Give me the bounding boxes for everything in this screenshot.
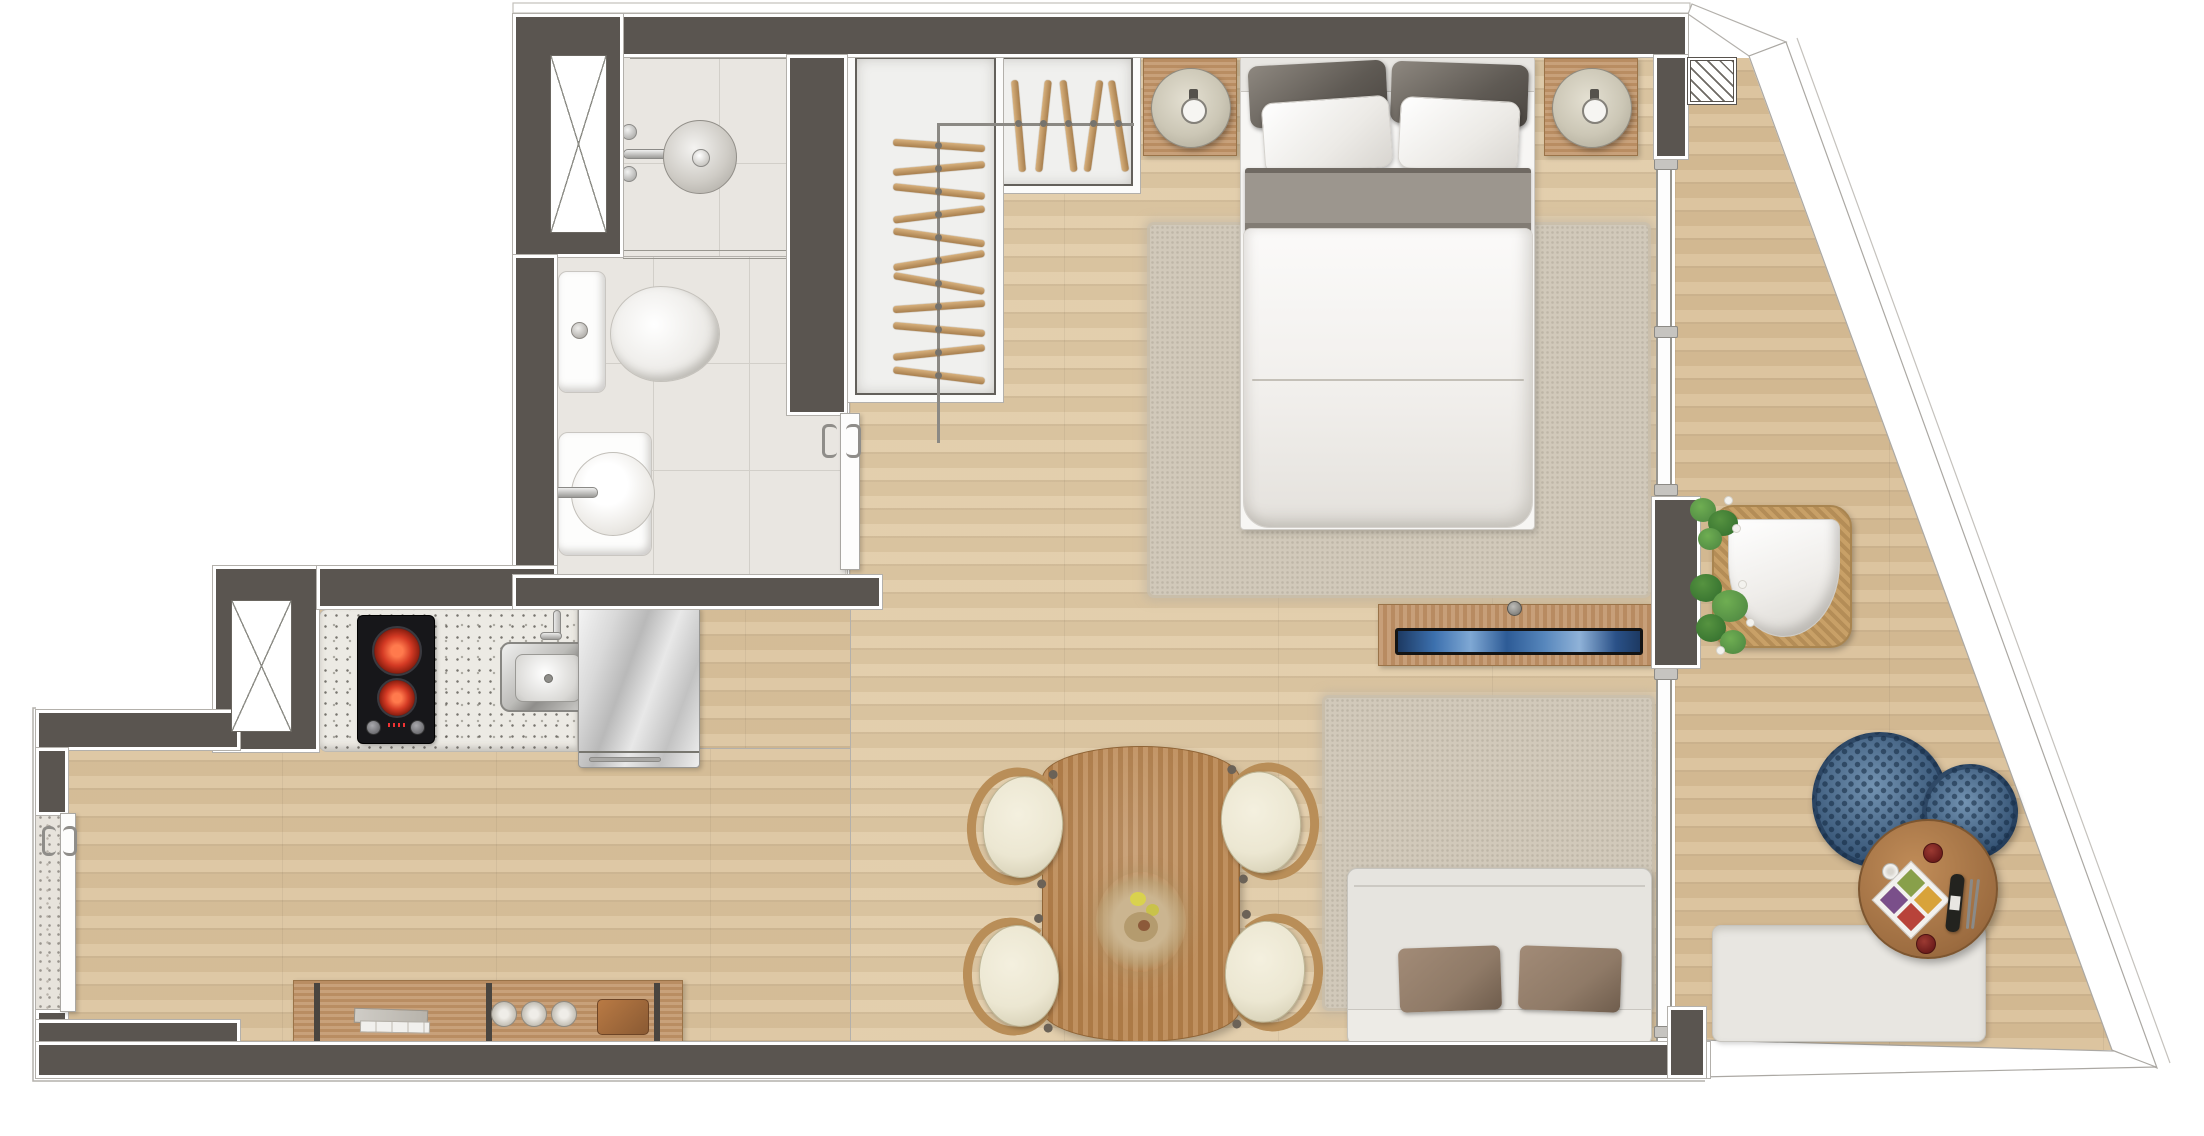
hanger-hook (935, 257, 942, 264)
refrigerator-door-line (579, 751, 699, 753)
burner (372, 626, 422, 676)
armrest-tip (1227, 765, 1237, 775)
table-lamp (1151, 68, 1231, 148)
decor-plates (491, 1001, 577, 1029)
armrest-tip (1037, 879, 1047, 889)
hanger-hook (935, 372, 942, 379)
sofa-cushion (1398, 945, 1502, 1013)
wine-glass (1916, 934, 1936, 954)
hanger-hook (1090, 120, 1097, 127)
decor-plate (491, 1001, 517, 1027)
cooktop-display (388, 723, 406, 727)
sofa-backrest (1348, 1009, 1651, 1045)
potted-plant (579, 949, 659, 1041)
door-handle (822, 424, 837, 458)
wall-left-middle (513, 255, 557, 575)
service-shaft (231, 600, 292, 732)
glass-panel-joint (1654, 158, 1678, 170)
flower-centerpiece (1096, 872, 1186, 972)
wardrobe-closet (848, 50, 1140, 402)
hanger-hook (935, 188, 942, 195)
balcony-plant (1686, 568, 1766, 668)
hanger-hook (935, 211, 942, 218)
closet-rail-top (937, 123, 1134, 126)
cooktop-knob (366, 720, 381, 735)
books (360, 1020, 430, 1033)
wall-bathroom-bottom (513, 575, 882, 609)
glass-panel-joint (1654, 668, 1678, 680)
folded-sheet (1245, 168, 1531, 234)
armrest-tip (1034, 914, 1044, 924)
door-handle (846, 424, 861, 458)
decor-plate (551, 1001, 577, 1027)
dining-chair (1208, 905, 1328, 1038)
hanger-hook (935, 165, 942, 172)
door-handle (63, 826, 77, 856)
sink-drain (544, 674, 553, 683)
duvet (1243, 228, 1533, 528)
wine-glass (1923, 843, 1943, 863)
shower-head (663, 120, 737, 194)
wall-balcony-pier-lower (1668, 1007, 1706, 1078)
wall-top-right-stub (1654, 55, 1688, 159)
plant-pot (597, 999, 649, 1035)
sofa-seam (1354, 885, 1645, 887)
pillow-white (1397, 96, 1521, 174)
hanger-hook (1040, 120, 1047, 127)
wall-bottom (36, 1042, 1710, 1078)
wine-bottle (1945, 873, 1965, 932)
cooktop (358, 616, 434, 743)
floor-plan (0, 0, 2204, 1136)
double-bed (1240, 57, 1535, 530)
hanger-hook (1015, 120, 1022, 127)
armrest-tip (1242, 910, 1252, 920)
wall-bathroom-right (787, 55, 847, 415)
pillow-white (1261, 95, 1394, 176)
shower-valve (621, 124, 637, 140)
wall-top (513, 14, 1688, 57)
hanger-hook (935, 326, 942, 333)
dining-chair (958, 909, 1078, 1042)
structural-column-hatched (1688, 58, 1736, 104)
hanger-hook (1115, 120, 1122, 127)
hanger-hook (935, 234, 942, 241)
shower-valve (621, 166, 637, 182)
door-handle (42, 826, 56, 856)
service-shaft (550, 55, 607, 233)
hanger-hook (1065, 120, 1072, 127)
wall-left-foot (36, 710, 240, 750)
washbasin-faucet (554, 487, 598, 498)
kitchen-faucet-spout (540, 632, 562, 640)
cooktop-knob (410, 720, 425, 735)
nightstand-right (1544, 58, 1638, 156)
armrest-tip (1238, 874, 1248, 884)
sideboard-divider (314, 983, 320, 1041)
hanger-hook (935, 349, 942, 356)
dining-chair (1203, 755, 1325, 890)
table-lamp (1552, 68, 1632, 148)
refrigerator (578, 606, 700, 768)
wall-entry-upper (36, 748, 68, 815)
hanger-hook (935, 280, 942, 287)
hanger-hook (935, 303, 942, 310)
sofa (1347, 868, 1652, 1046)
armrest-tip (1232, 1019, 1242, 1029)
decor-plate (521, 1001, 547, 1027)
toilet-flush-knob (571, 322, 588, 339)
tv-screen (1395, 628, 1643, 655)
armrest-tip (1048, 770, 1058, 780)
sideboard (293, 980, 683, 1042)
wall-bottom-left (36, 1020, 240, 1044)
sofa-cushion (1518, 945, 1622, 1013)
balcony-plant (1684, 490, 1748, 564)
tv-console (1378, 604, 1652, 666)
burner (377, 678, 417, 718)
dining-chair (961, 760, 1083, 895)
armrest-tip (1043, 1023, 1053, 1033)
nightstand-left (1143, 58, 1237, 156)
tv-cable-knob (1507, 601, 1522, 616)
hanger-hook (935, 142, 942, 149)
refrigerator-handle (589, 757, 661, 762)
glass-panel-joint (1654, 484, 1678, 496)
glass-panel-joint (1654, 326, 1678, 338)
balcony-round-table (1858, 819, 1998, 959)
